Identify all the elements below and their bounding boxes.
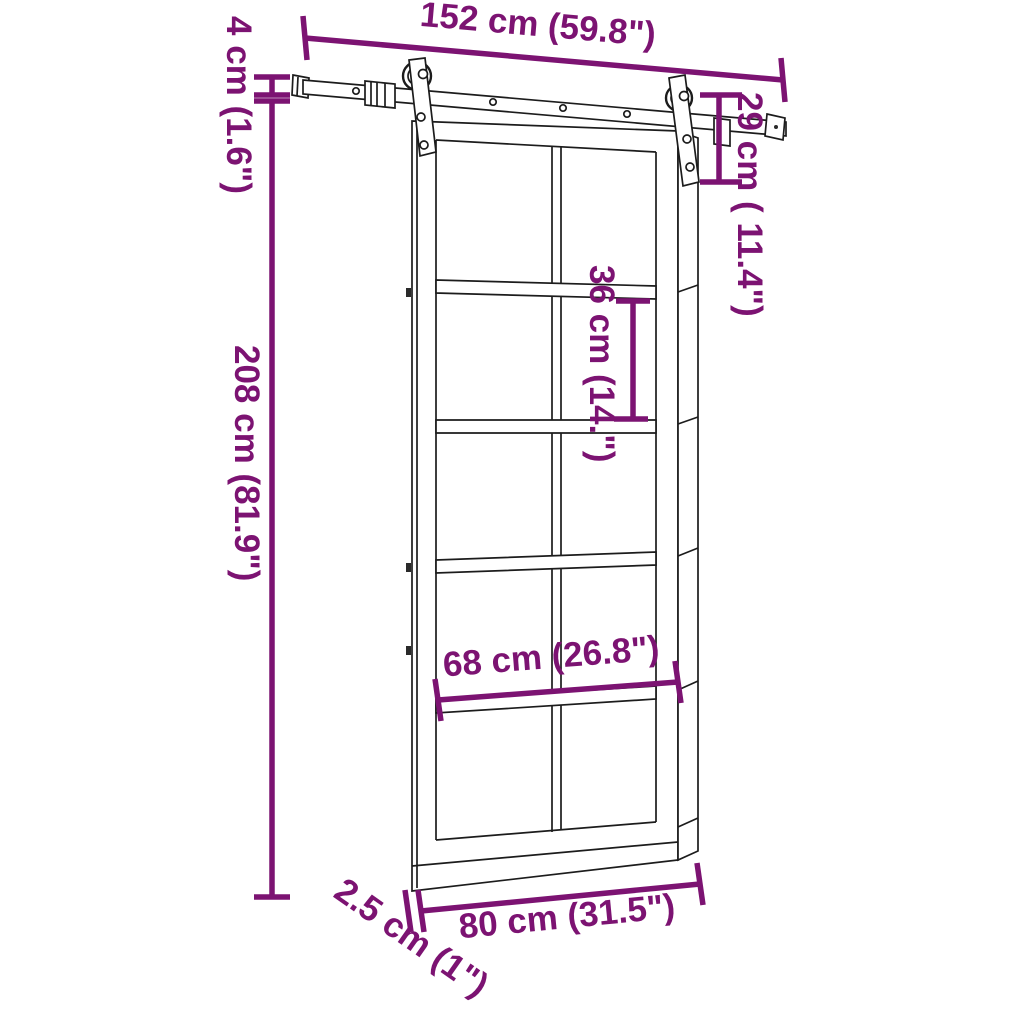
left-hanger [403, 58, 436, 156]
rail-screw [624, 111, 630, 117]
edge-fixing-marks [406, 288, 411, 655]
rail-collar [365, 81, 395, 108]
door-front-face [412, 121, 678, 891]
dim-rail-clearance [254, 77, 290, 95]
label-hanger-drop: 29 cm ( 11.4") [730, 92, 769, 317]
label-pane-height: 36 cm (14.") [582, 265, 621, 463]
rail-screw [560, 105, 566, 111]
rail-right-end-dot [774, 125, 778, 129]
door-side-face [678, 131, 698, 860]
dimension-diagram: 152 cm (59.8") 4 cm (1.6") 208 cm (81.9"… [0, 0, 1024, 1024]
label-rail-clearance: 4 cm (1.6") [219, 16, 258, 194]
left-strap-hole [420, 141, 428, 149]
right-axle-bolt [680, 92, 689, 101]
left-axle-bolt [419, 70, 428, 79]
right-strap-hole [683, 135, 691, 143]
left-strap-hole [417, 113, 425, 121]
rail-screw [353, 88, 359, 94]
right-strap-hole [686, 163, 694, 171]
glazing-rail-2 [436, 420, 656, 433]
diagram-canvas: 152 cm (59.8") 4 cm (1.6") 208 cm (81.9"… [0, 0, 1024, 1024]
label-door-height: 208 cm (81.9") [227, 345, 266, 581]
rail-left-end-notch [297, 77, 298, 96]
rail-screw [490, 99, 496, 105]
label-rail-length: 152 cm (59.8") [419, 0, 658, 54]
door-leaf [406, 121, 698, 891]
